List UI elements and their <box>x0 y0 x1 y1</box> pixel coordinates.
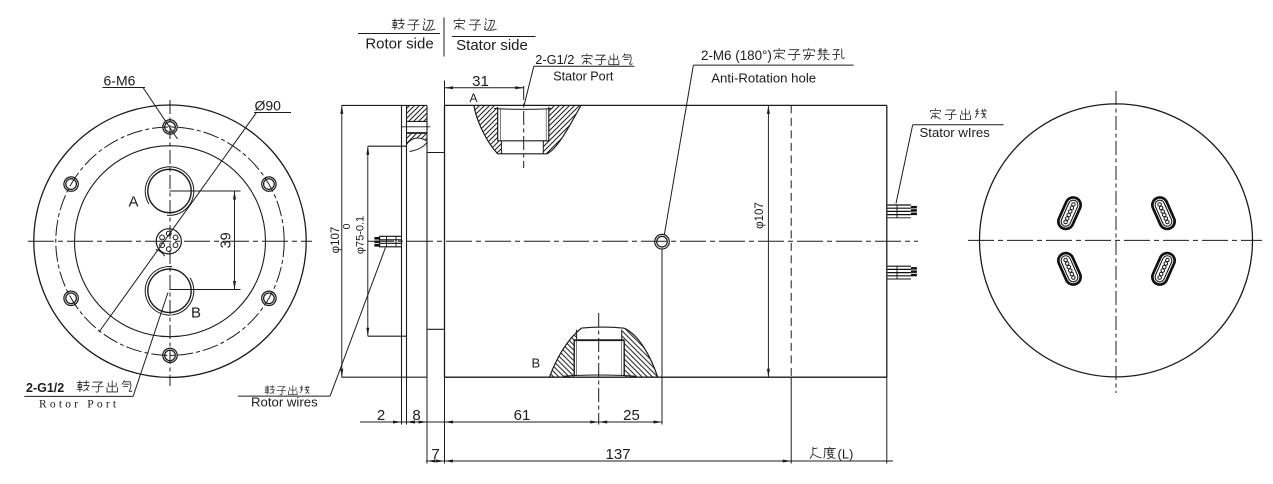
svg-text:Rotor side: Rotor side <box>365 36 433 53</box>
svg-text:0: 0 <box>341 223 353 229</box>
svg-text:Stator wIres: Stator wIres <box>920 125 991 140</box>
svg-text:(L): (L) <box>838 447 854 462</box>
svg-text:31: 31 <box>472 73 489 90</box>
svg-text:B: B <box>532 356 541 371</box>
svg-text:Ø90: Ø90 <box>255 98 282 114</box>
svg-text:Stator Port: Stator Port <box>553 70 614 84</box>
svg-text:6-M6: 6-M6 <box>104 73 136 89</box>
svg-text:7: 7 <box>431 446 439 463</box>
svg-text:φ107: φ107 <box>754 202 766 229</box>
svg-text:61: 61 <box>514 407 531 424</box>
svg-text:2-G1/2: 2-G1/2 <box>535 52 574 67</box>
svg-text:Rotor wires: Rotor wires <box>251 394 318 409</box>
svg-text:Anti-Rotation hole: Anti-Rotation hole <box>711 70 816 85</box>
svg-text:137: 137 <box>605 446 630 463</box>
svg-text:A: A <box>129 194 139 211</box>
svg-text:φ75-0.1: φ75-0.1 <box>355 216 367 254</box>
svg-text:Rotor Port: Rotor Port <box>39 399 119 411</box>
svg-text:2-M6 (180°): 2-M6 (180°) <box>701 48 772 63</box>
svg-text:39: 39 <box>219 232 235 248</box>
svg-text:25: 25 <box>623 407 640 424</box>
svg-text:2: 2 <box>377 407 385 424</box>
svg-text:A: A <box>470 91 478 105</box>
svg-text:2-G1/2: 2-G1/2 <box>26 381 64 395</box>
svg-text:B: B <box>191 305 201 322</box>
svg-text:Stator side: Stator side <box>456 37 528 54</box>
svg-text:φ107: φ107 <box>330 227 342 254</box>
svg-text:8: 8 <box>412 407 420 424</box>
